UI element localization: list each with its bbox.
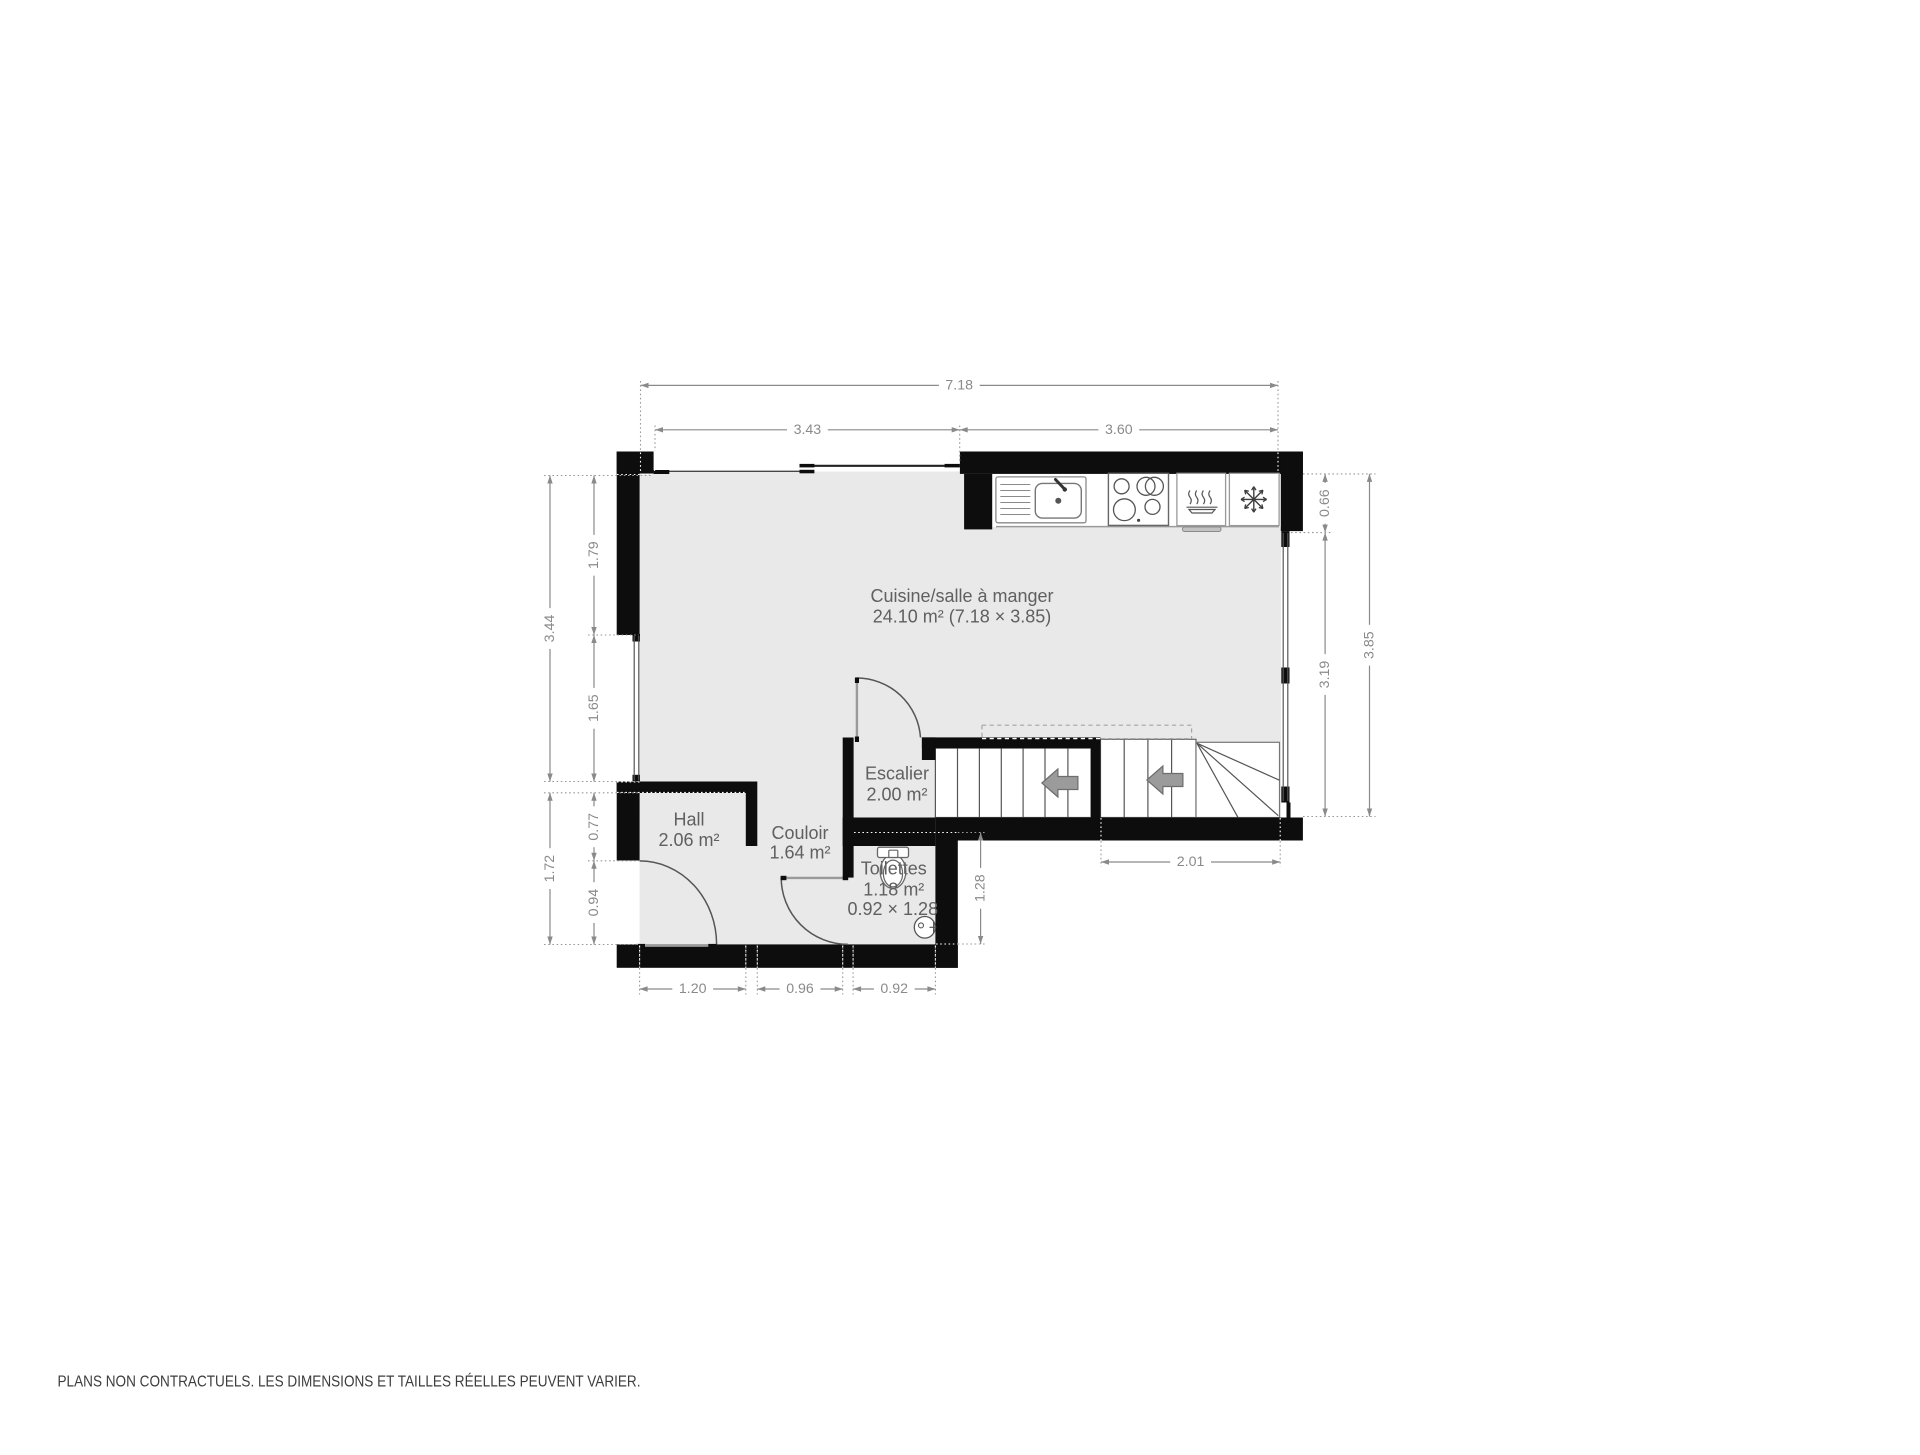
svg-text:1.65: 1.65 [586,694,602,722]
svg-text:1.79: 1.79 [586,541,602,569]
svg-text:3.60: 3.60 [1105,422,1133,438]
svg-text:Cuisine/salle à manger: Cuisine/salle à manger [870,586,1053,606]
svg-text:1.64 m²: 1.64 m² [769,842,830,862]
svg-text:0.92: 0.92 [880,981,908,997]
svg-text:Escalier: Escalier [865,764,929,784]
svg-text:1.20: 1.20 [679,981,707,997]
svg-text:1.72: 1.72 [542,855,558,883]
svg-text:PLANS NON CONTRACTUELS. LES DI: PLANS NON CONTRACTUELS. LES DIMENSIONS E… [58,1372,641,1391]
svg-text:1.18 m²: 1.18 m² [863,879,924,899]
svg-text:1.28: 1.28 [973,874,989,902]
svg-text:2.06 m²: 2.06 m² [658,830,719,850]
svg-text:24.10 m² (7.18 × 3.85): 24.10 m² (7.18 × 3.85) [873,607,1052,627]
svg-text:0.94: 0.94 [586,889,602,917]
svg-text:7.18: 7.18 [945,377,973,393]
svg-text:3.19: 3.19 [1317,661,1333,689]
svg-text:3.43: 3.43 [794,422,822,438]
svg-text:3.85: 3.85 [1362,631,1378,659]
svg-text:Toilettes: Toilettes [861,859,927,879]
svg-text:0.66: 0.66 [1317,489,1333,517]
svg-text:Hall: Hall [673,810,704,830]
svg-text:2.01: 2.01 [1177,854,1205,870]
svg-text:0.96: 0.96 [786,981,814,997]
svg-text:0.77: 0.77 [586,813,602,841]
svg-text:3.44: 3.44 [542,615,558,643]
svg-text:0.92 × 1.28: 0.92 × 1.28 [848,899,939,919]
svg-text:Couloir: Couloir [771,823,828,843]
svg-text:2.00 m²: 2.00 m² [866,785,927,805]
